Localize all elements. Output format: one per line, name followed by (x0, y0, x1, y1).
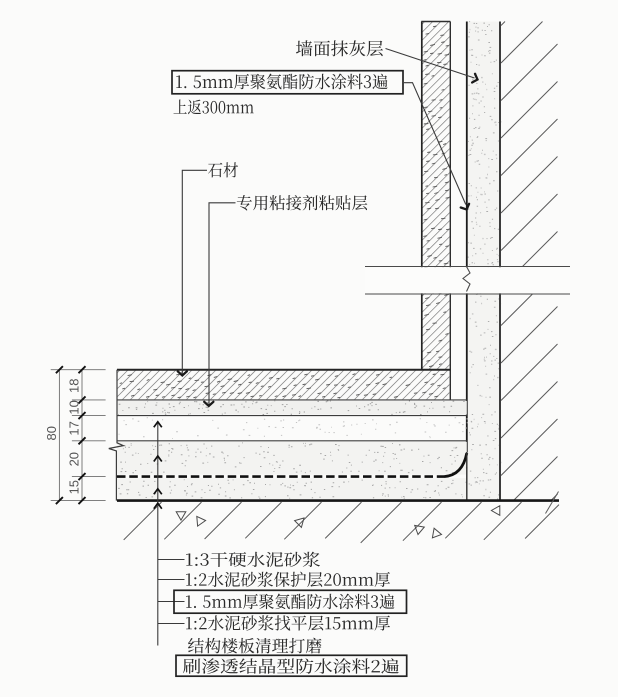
svg-text:15: 15 (67, 480, 82, 494)
svg-text:80: 80 (44, 426, 59, 440)
svg-text:20: 20 (67, 452, 82, 466)
svg-text:10: 10 (67, 400, 82, 414)
svg-text:18: 18 (67, 379, 82, 393)
svg-text:17: 17 (67, 421, 82, 435)
